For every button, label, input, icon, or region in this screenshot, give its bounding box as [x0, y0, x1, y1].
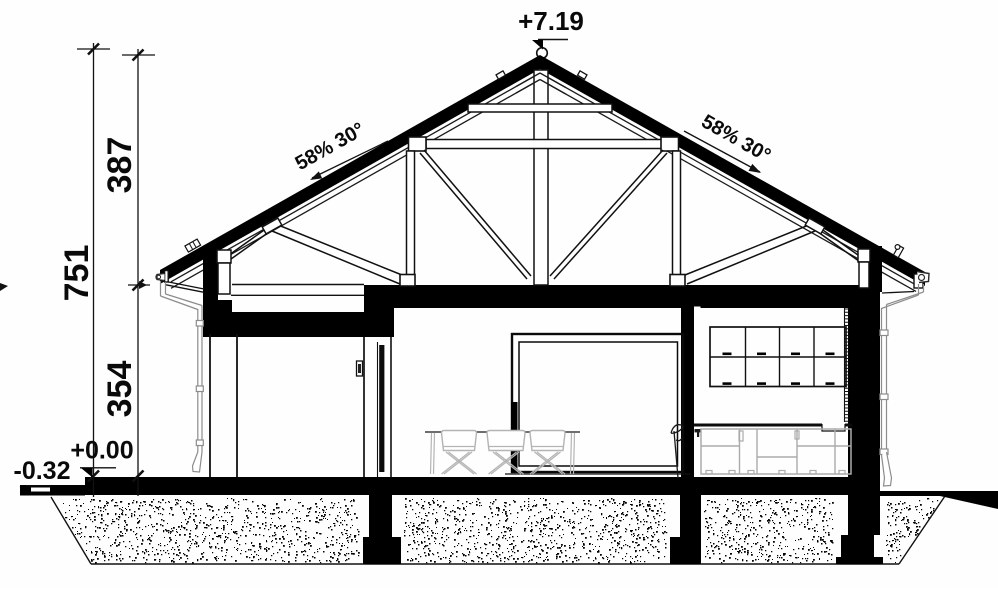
svg-text:+7.19: +7.19 — [518, 6, 584, 36]
svg-text:387: 387 — [101, 137, 139, 194]
svg-text:-0.32: -0.32 — [14, 457, 71, 485]
svg-text:751: 751 — [58, 245, 96, 302]
svg-text:+0.00: +0.00 — [70, 437, 133, 465]
svg-text:354: 354 — [101, 361, 139, 418]
